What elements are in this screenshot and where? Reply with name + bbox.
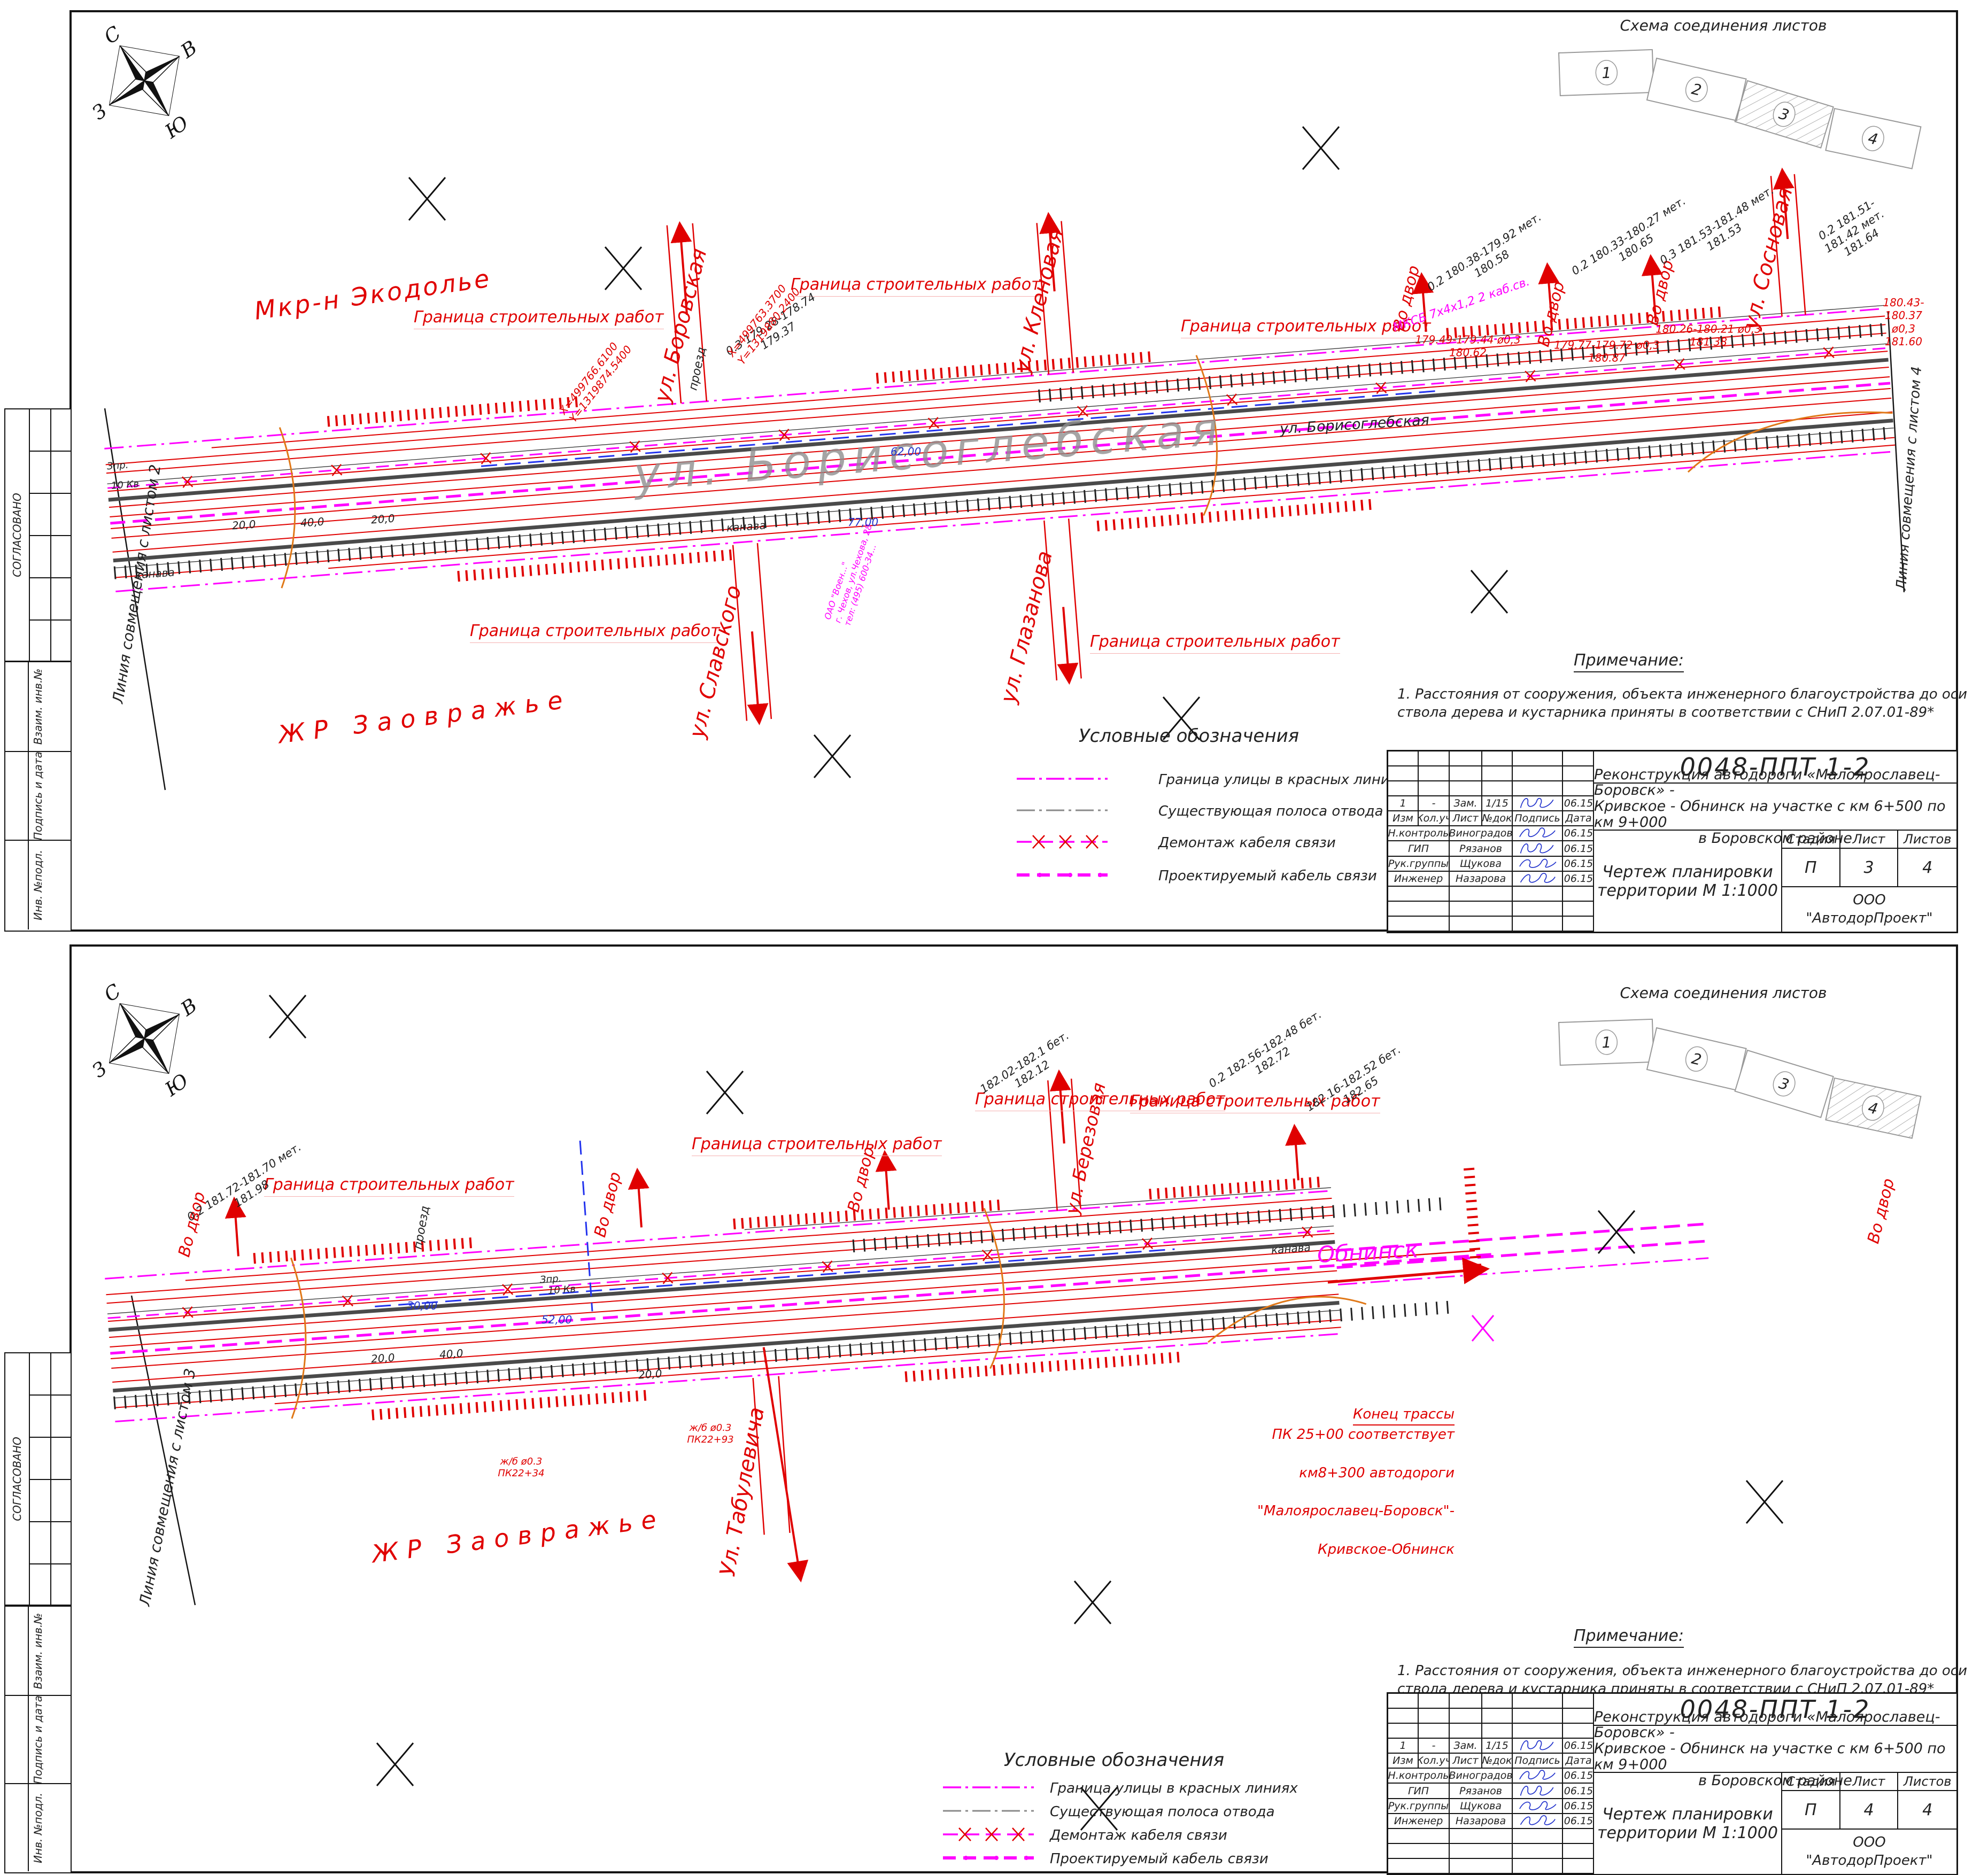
approval-column: СОГЛАСОВАНО [4, 1352, 72, 1606]
compass-icon: С В Ю З [91, 984, 198, 1091]
dimension-blue: 52,00 [542, 1313, 572, 1326]
scheme-title: Схема соединения листов [1552, 17, 1894, 34]
organization: ООО"АвтодорПроект" [1782, 1830, 1956, 1874]
approved-label: СОГЛАСОВАНО [11, 1437, 24, 1521]
legend-item: Проектируемый кабель связи [1002, 868, 1376, 884]
sheet-scheme: 1 2 3 4 [1552, 37, 1894, 187]
inventory-column: Взаим. инв.№ Подпись и дата Инв. №подл. [4, 1606, 72, 1873]
legend-item: Демонтаж кабеля связи [1002, 835, 1376, 851]
stage-sheet-table: СтадияЛистЛистов П34 ООО"АвтодорПроект" [1782, 831, 1956, 932]
dimension-blue: 30,00 [407, 1299, 437, 1312]
dimension: 20,0 [231, 517, 256, 532]
compass-north: С [100, 22, 125, 49]
end-of-route-note: Конец трассы ПК 25+00 соответствует км8+… [1174, 1386, 1455, 1579]
sheet-scheme: 1 2 3 4 [1552, 1006, 1894, 1156]
compass-west: З [89, 100, 111, 125]
redline-boundary-sample [943, 1784, 1034, 1791]
svg-text:З: З [89, 1058, 111, 1082]
svg-text:1: 1 [1602, 1034, 1612, 1052]
construction-boundary-label: Граница строительных работ [692, 1135, 942, 1156]
dimension: 20,0 [370, 1351, 395, 1365]
plan-note: 10 Кв [547, 1283, 576, 1297]
redline-boundary-sample [1017, 775, 1108, 782]
legend-item: Проектируемый кабель связи [927, 1851, 1301, 1867]
project-title: Реконструкция автодороги «Малоярославец-… [1594, 784, 1956, 831]
signature [1516, 1784, 1559, 1799]
signature [1516, 826, 1559, 841]
inventory-column: Взаим. инв.№ Подпись и дата Инв. №подл. [4, 661, 72, 932]
legend-item: Существующая полоса отвода [1002, 803, 1376, 819]
signature [1516, 796, 1559, 811]
designed-cable-sample [943, 1854, 1034, 1862]
cable-demolition-sample [943, 1826, 1034, 1842]
svg-text:В: В [176, 995, 201, 1021]
compass-east: В [176, 37, 201, 63]
signature [1516, 1769, 1559, 1784]
sheet-1: С В Ю З Схема соединения листов 1 2 3 4 … [69, 10, 1958, 932]
signature [1516, 1799, 1559, 1814]
ditch-label: канава [135, 565, 175, 581]
legend-item: Демонтаж кабеля связи [927, 1827, 1301, 1843]
organization: ООО"АвтодорПроект" [1782, 887, 1956, 932]
signature [1516, 857, 1559, 872]
pipe-callout: ж/б ø0.3 ПК22+34 [498, 1456, 544, 1479]
drawing-page: С В Ю З Схема соединения листов 1 2 3 4 … [0, 0, 1988, 1875]
note-line: 1. Расстояния от сооружения, объекта инж… [1397, 1663, 1967, 1679]
construction-boundary-label: Граница строительных работ [414, 308, 664, 329]
legend-item: Граница улицы в красных линиях [1002, 772, 1376, 788]
ditch-label: канава [1271, 1241, 1311, 1256]
compass-icon: С В Ю З [91, 26, 198, 133]
legend-title: Условные обозначения [927, 1749, 1301, 1771]
approved-label: СОГЛАСОВАНО [11, 493, 24, 577]
dimension: 20,0 [370, 512, 395, 526]
legend: Условные обозначения Граница улицы в кра… [1002, 718, 1376, 878]
drawing-name: Чертеж планировки территории М 1:1000 [1594, 1773, 1782, 1874]
existing-row-sample [1017, 807, 1108, 814]
signature [1516, 841, 1559, 856]
dimension-blue: 62,00 [891, 445, 921, 458]
stage-sheet-table: СтадияЛистЛистов П44 ООО"АвтодорПроект" [1782, 1773, 1956, 1874]
pipe-callout: 179.49-179.44 ø0,3 180.62 [1415, 334, 1521, 360]
legend-title: Условные обозначения [1002, 725, 1376, 747]
drawing-name: Чертеж планировки территории М 1:1000 [1594, 831, 1782, 932]
revision-table: 1-Зам.1/1506.15 ИзмКол.учЛист№докПодпись… [1388, 1694, 1594, 1874]
legend-item: Существующая полоса отвода [927, 1804, 1301, 1820]
pipe-callout: 179.77-179.72 ø0,3 180.87 [1554, 339, 1660, 365]
project-title: Реконструкция автодороги «Малоярославец-… [1594, 1726, 1956, 1773]
designed-cable-sample [1017, 871, 1108, 879]
dimension-blue: 77,00 [848, 516, 878, 529]
svg-text:С: С [100, 980, 125, 1006]
note-line: 1. Расстояния от сооружения, объекта инж… [1397, 686, 1967, 702]
title-block: 1-Зам.1/1506.15 ИзмКол.учЛист№докПодпись… [1387, 750, 1958, 933]
note-title: Примечание: [1574, 1626, 1684, 1648]
pipe-callout: 180.43-180.37 ø0,3 181.60 [1877, 296, 1930, 348]
ditch-label: канава [726, 518, 766, 534]
pipe-callout: ж/б ø0.3 ПК22+93 [687, 1422, 733, 1446]
scheme-title: Схема соединения листов [1552, 984, 1894, 1002]
dimension: 40,0 [439, 1346, 463, 1361]
approval-column: СОГЛАСОВАНО [4, 408, 72, 662]
signature [1516, 1739, 1559, 1754]
note-title: Примечание: [1574, 651, 1684, 672]
dimension: 40,0 [300, 515, 324, 529]
legend: Условные обозначения Граница улицы в кра… [927, 1748, 1301, 1875]
plan-note: Зпр. [106, 460, 129, 473]
signature [1516, 872, 1559, 887]
construction-boundary-label: Граница строительных работ [791, 275, 1041, 297]
destination-label: Обнинск [1317, 1236, 1419, 1268]
plan-note: 10 Кв [111, 478, 139, 492]
legend-item: Граница улицы в красных линиях [927, 1780, 1301, 1796]
note-line: ствола дерева и кустарника приняты в соо… [1397, 704, 1934, 720]
existing-row-sample [943, 1807, 1034, 1815]
scheme-box-1: 1 [1602, 64, 1612, 82]
construction-boundary-label: Граница строительных работ [264, 1175, 514, 1197]
title-block: 1-Зам.1/1506.15 ИзмКол.учЛист№докПодпись… [1387, 1692, 1958, 1875]
revision-table: 1-Зам.1/1506.15 ИзмКол.учЛист№докПодпись… [1388, 751, 1594, 932]
construction-boundary-label: Граница строительных работ [470, 622, 720, 643]
sheet-2: С В Ю З Схема соединения листов 1 2 3 4 … [69, 944, 1958, 1873]
construction-boundary-label: Граница строительных работ [1090, 632, 1340, 654]
cable-demolition-sample [1017, 834, 1108, 850]
pipe-callout: 180.26-180.21 ø0,3 181.38 [1656, 323, 1761, 349]
dimension: 20,0 [638, 1367, 662, 1381]
signature [1516, 1814, 1559, 1829]
